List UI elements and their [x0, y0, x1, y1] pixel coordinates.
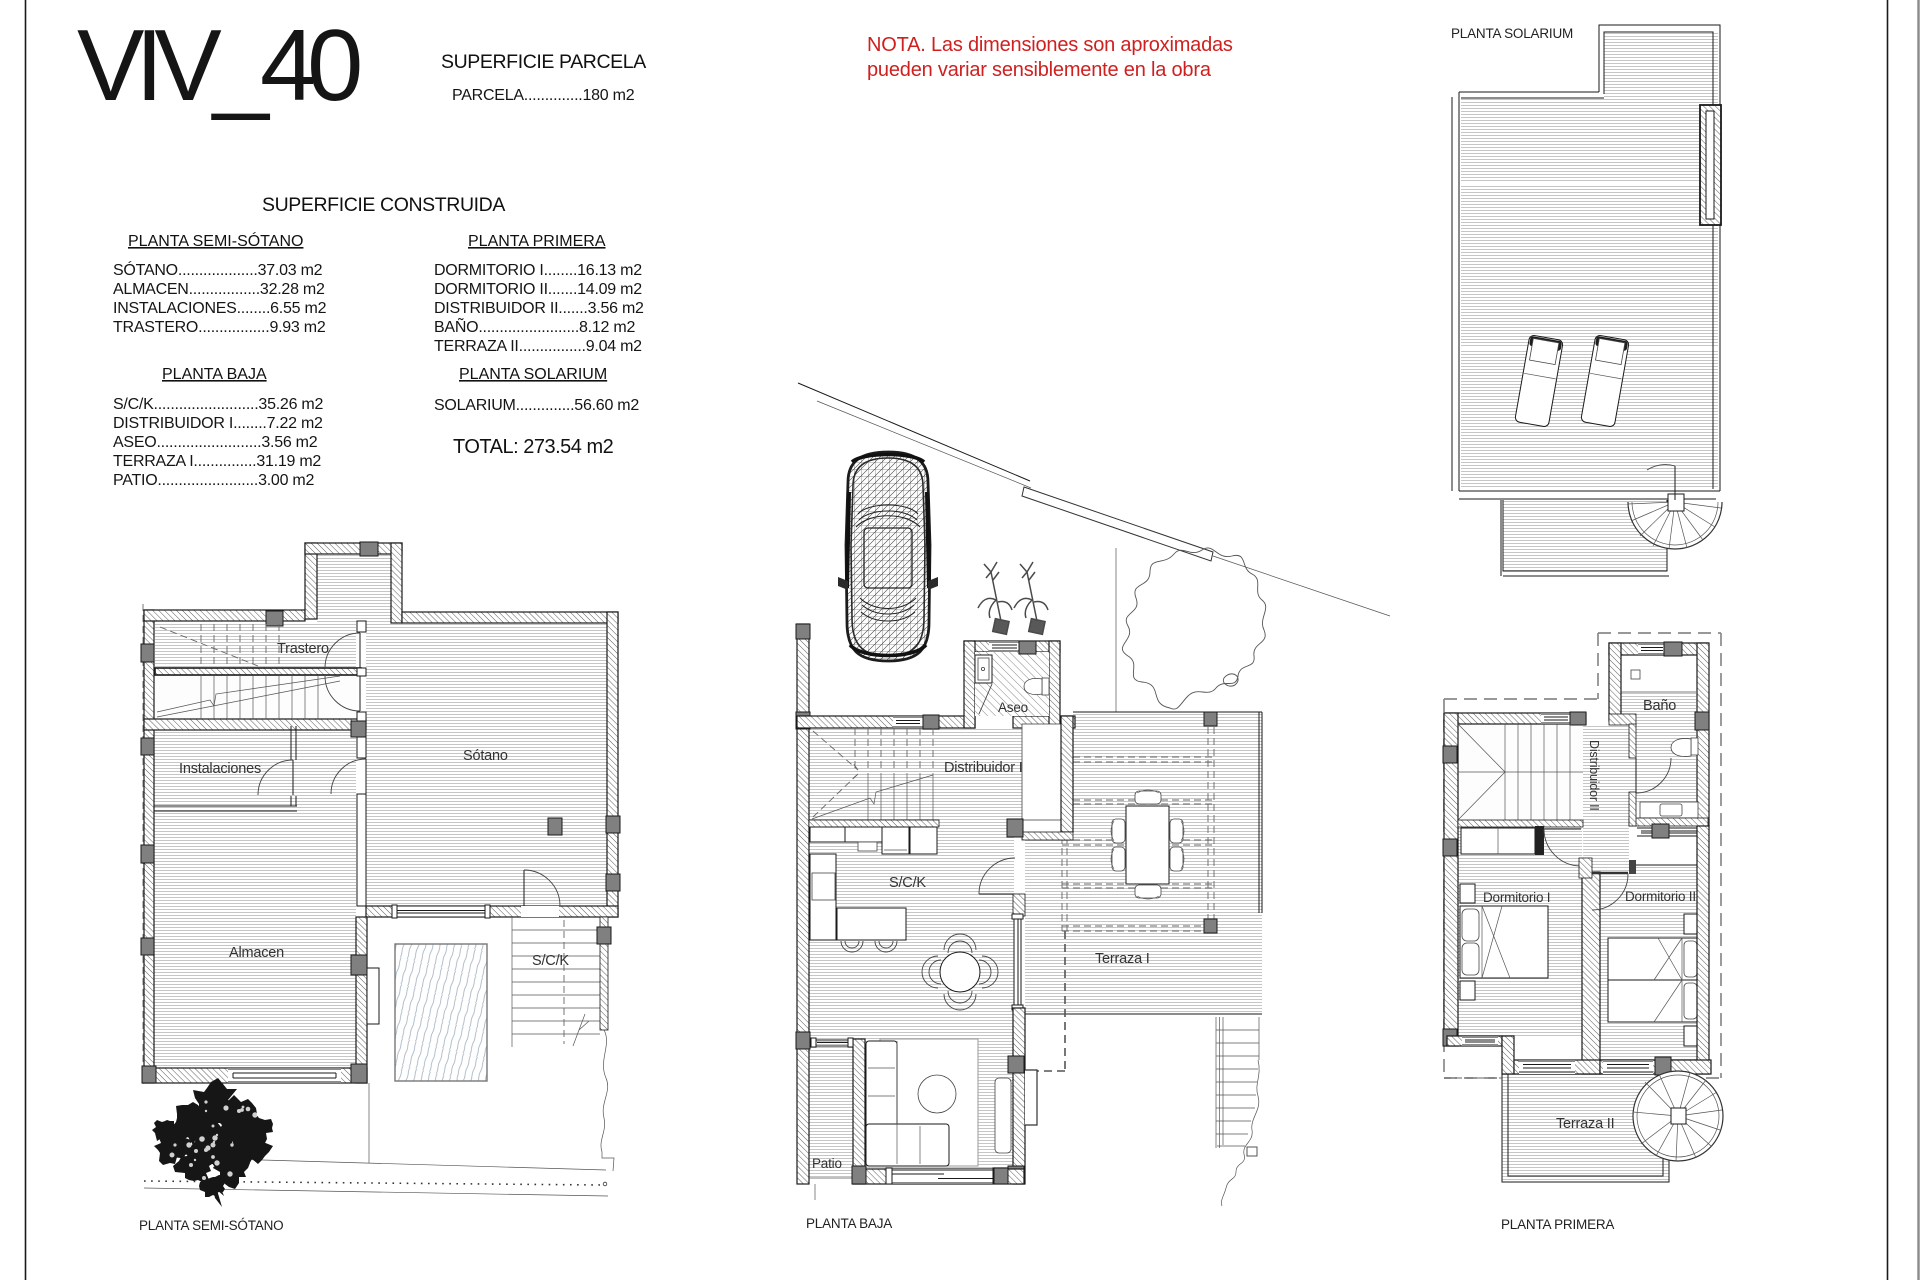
svg-text:TERRAZA I...............31.19: TERRAZA I...............31.19 m2 — [113, 453, 321, 470]
svg-text:Distribuidor II: Distribuidor II — [1587, 740, 1601, 811]
svg-text:TRASTERO.................9.93: TRASTERO.................9.93 m2 — [113, 319, 326, 336]
svg-text:pueden variar sensiblemente en: pueden variar sensiblemente en la obra — [867, 59, 1212, 81]
svg-text:Instalaciones: Instalaciones — [179, 761, 261, 777]
svg-text:PLANTA BAJA: PLANTA BAJA — [806, 1216, 892, 1231]
svg-text:SUPERFICIE PARCELA: SUPERFICIE PARCELA — [441, 51, 646, 73]
svg-text:PLANTA BAJA: PLANTA BAJA — [162, 366, 267, 383]
svg-text:ALMACEN.................32.28: ALMACEN.................32.28 m2 — [113, 281, 325, 298]
svg-text:PLANTA SEMI-SÓTANO: PLANTA SEMI-SÓTANO — [139, 1218, 283, 1233]
svg-text:Almacen: Almacen — [229, 945, 284, 961]
svg-text:TERRAZA II................9.04: TERRAZA II................9.04 m2 — [434, 338, 642, 355]
svg-text:Sótano: Sótano — [463, 748, 508, 764]
svg-text:Baño: Baño — [1643, 698, 1676, 714]
svg-text:PATIO........................3: PATIO........................3.00 m2 — [113, 472, 314, 489]
svg-text:Aseo: Aseo — [998, 700, 1028, 715]
svg-text:PLANTA SOLARIUM: PLANTA SOLARIUM — [1451, 26, 1573, 41]
svg-text:INSTALACIONES........6.55 m2: INSTALACIONES........6.55 m2 — [113, 300, 327, 317]
svg-text:SÓTANO...................37.03: SÓTANO...................37.03 m2 — [113, 260, 323, 279]
svg-text:PLANTA PRIMERA: PLANTA PRIMERA — [468, 233, 606, 250]
svg-text:DORMITORIO I........16.13 m2: DORMITORIO I........16.13 m2 — [434, 262, 642, 279]
svg-text:ASEO.........................3: ASEO.........................3.56 m2 — [113, 434, 318, 451]
svg-text:DISTRIBUIDOR I........7.22 m2: DISTRIBUIDOR I........7.22 m2 — [113, 415, 323, 432]
svg-text:S/C/K: S/C/K — [889, 875, 926, 891]
svg-text:Terraza I: Terraza I — [1095, 951, 1150, 967]
svg-text:DISTRIBUIDOR II.......3.56 m2: DISTRIBUIDOR II.......3.56 m2 — [434, 300, 644, 317]
svg-text:S/C/K: S/C/K — [532, 953, 569, 969]
svg-text:Dormitorio I: Dormitorio I — [1483, 890, 1550, 905]
svg-text:VIV_40: VIV_40 — [77, 10, 360, 122]
svg-text:DORMITORIO II.......14.09 m2: DORMITORIO II.......14.09 m2 — [434, 281, 642, 298]
svg-text:NOTA. Las dimensiones son apro: NOTA. Las dimensiones son aproximadas — [867, 34, 1233, 56]
svg-text:Trastero: Trastero — [277, 641, 329, 657]
svg-text:S/C/K.........................: S/C/K.........................35.26 m2 — [113, 396, 323, 413]
svg-text:Distribuidor I: Distribuidor I — [944, 760, 1023, 776]
svg-text:PARCELA..............180 m2: PARCELA..............180 m2 — [452, 87, 635, 104]
svg-text:BAÑO........................8.: BAÑO........................8.12 m2 — [434, 316, 635, 336]
svg-text:Terraza II: Terraza II — [1556, 1116, 1614, 1132]
svg-text:TOTAL: 273.54 m2: TOTAL: 273.54 m2 — [453, 436, 614, 458]
svg-text:SUPERFICIE CONSTRUIDA: SUPERFICIE CONSTRUIDA — [262, 194, 505, 216]
svg-text:SOLARIUM..............56.60 m2: SOLARIUM..............56.60 m2 — [434, 397, 639, 414]
svg-text:PLANTA SOLARIUM: PLANTA SOLARIUM — [459, 366, 607, 383]
svg-text:PLANTA PRIMERA: PLANTA PRIMERA — [1501, 1217, 1614, 1232]
svg-text:Dormitorio II: Dormitorio II — [1625, 889, 1696, 904]
svg-text:PLANTA SEMI-SÓTANO: PLANTA SEMI-SÓTANO — [128, 231, 303, 250]
svg-text:Patio: Patio — [812, 1156, 842, 1171]
